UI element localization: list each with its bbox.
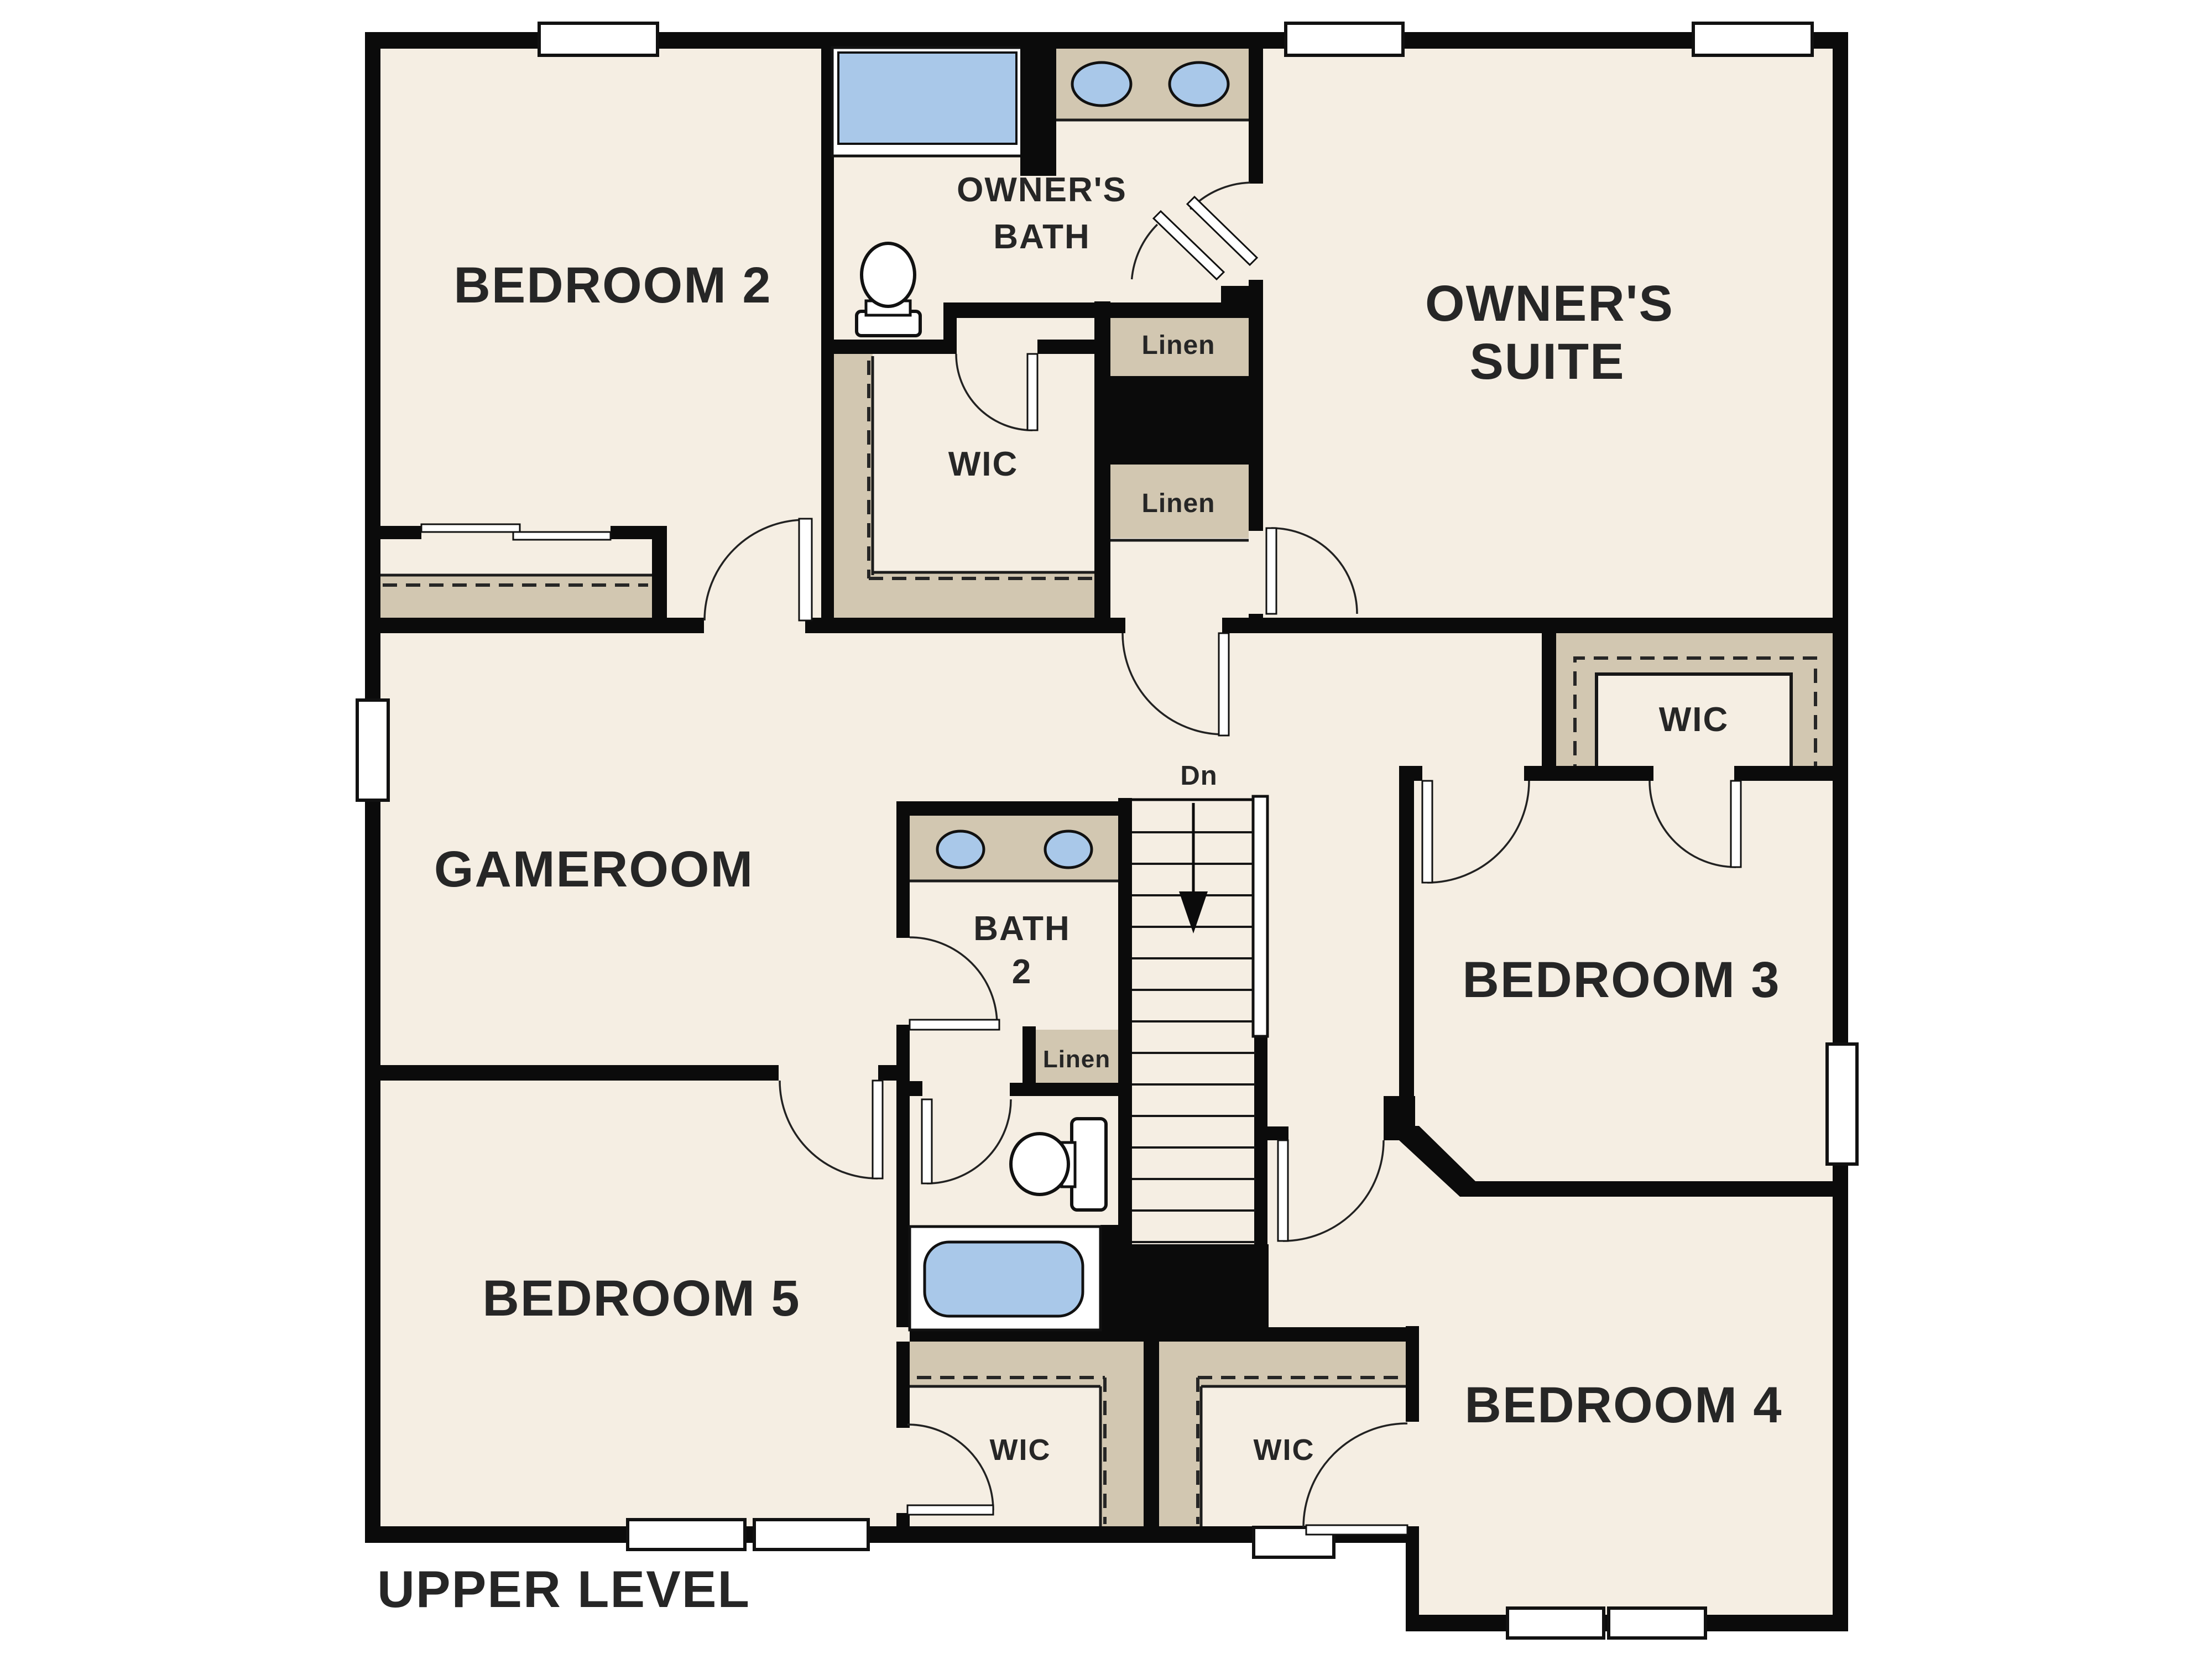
svg-text:Linen: Linen	[1142, 331, 1215, 360]
svg-text:WIC: WIC	[948, 445, 1019, 483]
svg-text:BEDROOM 3: BEDROOM 3	[1462, 952, 1780, 1008]
svg-text:UPPER LEVEL: UPPER LEVEL	[377, 1560, 750, 1618]
svg-text:WIC: WIC	[990, 1433, 1051, 1467]
svg-text:BEDROOM 5: BEDROOM 5	[482, 1270, 800, 1327]
svg-text:OWNER'S: OWNER'S	[1425, 275, 1674, 332]
svg-text:BATH: BATH	[973, 910, 1071, 948]
svg-text:Linen: Linen	[1142, 489, 1215, 518]
svg-text:BATH: BATH	[993, 218, 1091, 256]
svg-text:Linen: Linen	[1043, 1046, 1110, 1073]
svg-text:OWNER'S: OWNER'S	[957, 171, 1127, 209]
svg-text:Dn: Dn	[1180, 761, 1217, 791]
svg-text:WIC: WIC	[1254, 1433, 1315, 1467]
svg-text:SUITE: SUITE	[1470, 333, 1625, 390]
svg-text:WIC: WIC	[1659, 701, 1729, 739]
svg-text:GAMEROOM: GAMEROOM	[434, 841, 754, 898]
svg-text:2: 2	[1012, 953, 1032, 991]
svg-text:BEDROOM 2: BEDROOM 2	[453, 257, 771, 314]
svg-text:BEDROOM 4: BEDROOM 4	[1464, 1377, 1782, 1433]
